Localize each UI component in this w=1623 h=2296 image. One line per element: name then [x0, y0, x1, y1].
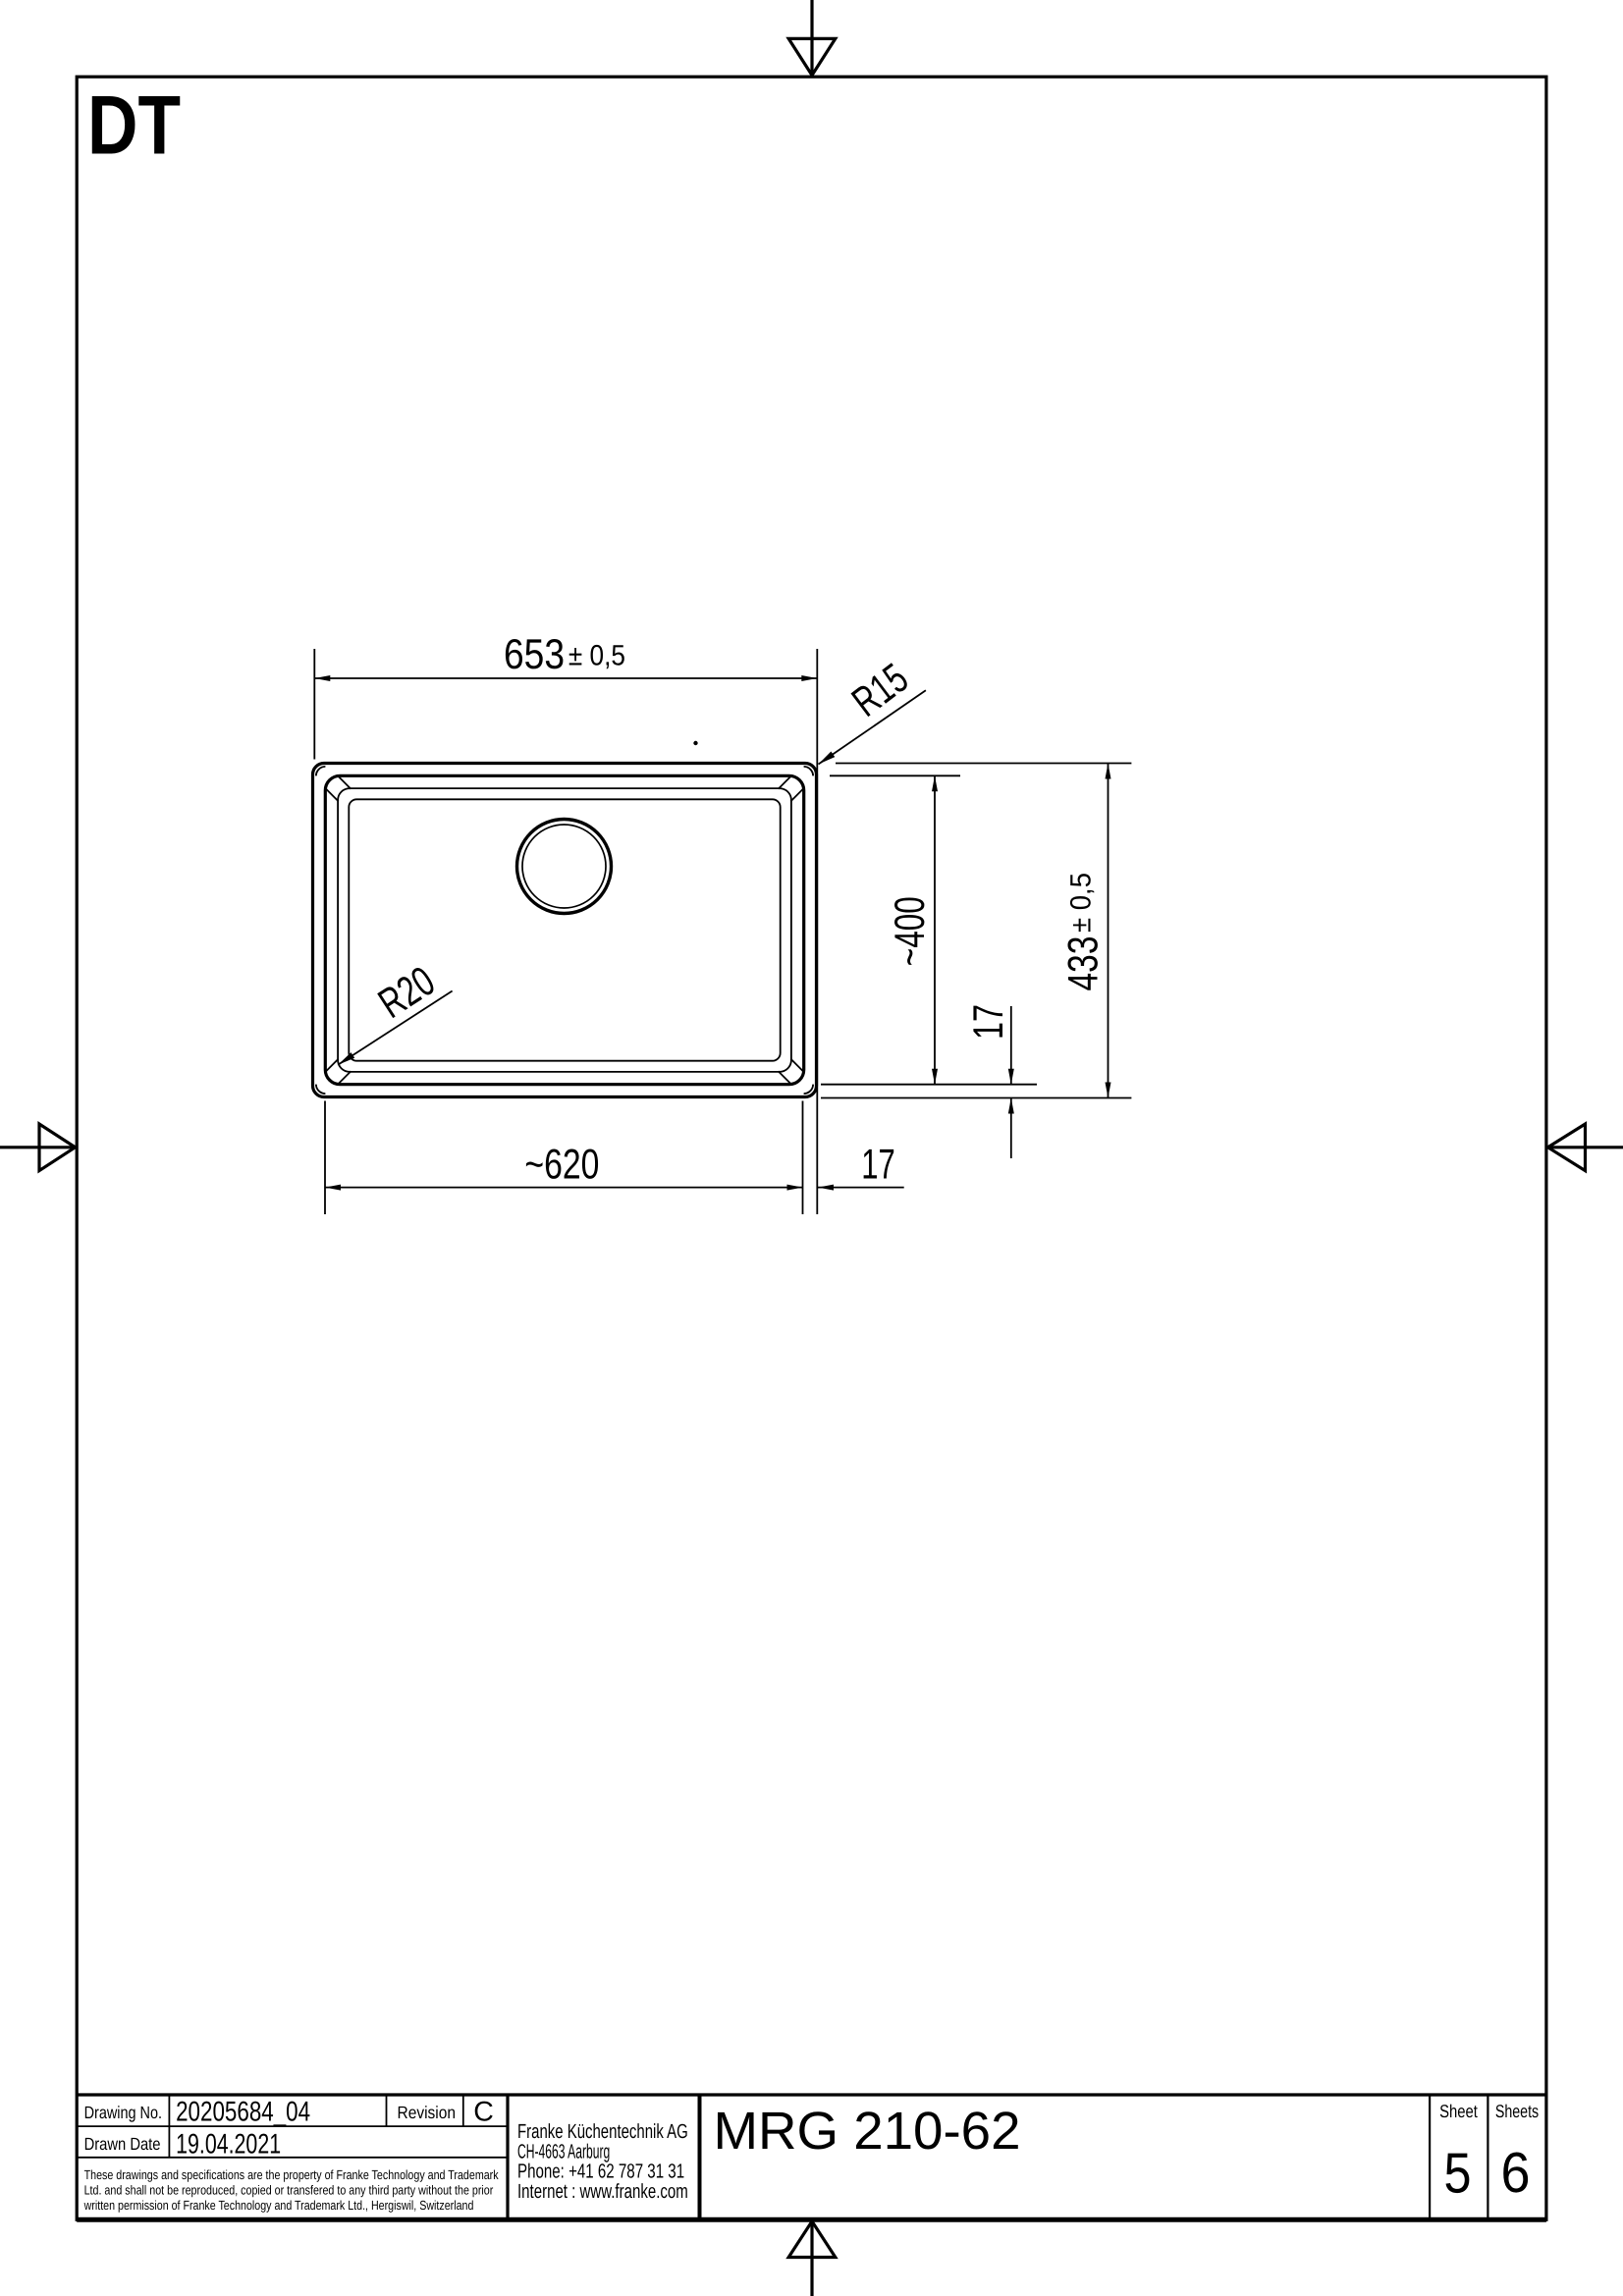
svg-text:6: 6 — [1501, 2141, 1531, 2205]
svg-text:Sheet: Sheet — [1439, 2101, 1478, 2121]
svg-text:433: 433 — [1059, 936, 1107, 991]
svg-text:± 0,5: ± 0,5 — [1065, 873, 1098, 933]
svg-text:Revision: Revision — [398, 2103, 457, 2122]
svg-text:19.04.2021: 19.04.2021 — [176, 2129, 281, 2161]
svg-text:17: 17 — [965, 1004, 1012, 1040]
svg-text:653: 653 — [504, 631, 565, 678]
svg-text:C: C — [473, 2096, 494, 2127]
svg-text:~620: ~620 — [524, 1142, 599, 1189]
svg-text:Drawing No.: Drawing No. — [84, 2103, 162, 2122]
svg-text:~400: ~400 — [887, 896, 934, 966]
svg-text:written permission of Franke T: written permission of Franke Technology … — [83, 2198, 474, 2213]
svg-text:± 0,5: ± 0,5 — [568, 640, 625, 672]
svg-text:DT: DT — [87, 80, 181, 173]
svg-text:5: 5 — [1444, 2141, 1472, 2205]
svg-text:Ltd. and shall not be reproduc: Ltd. and shall not be reproduced, copied… — [84, 2183, 494, 2198]
svg-text:MRG 210-62: MRG 210-62 — [714, 2102, 1021, 2161]
svg-text:Sheets: Sheets — [1495, 2101, 1539, 2121]
svg-text:17: 17 — [861, 1142, 895, 1189]
svg-text:Drawn Date: Drawn Date — [84, 2134, 161, 2154]
svg-text:Internet : www.franke.com: Internet : www.franke.com — [517, 2180, 688, 2203]
svg-text:These drawings and specificati: These drawings and specifications are th… — [84, 2167, 499, 2182]
svg-text:20205684_04: 20205684_04 — [176, 2096, 310, 2127]
